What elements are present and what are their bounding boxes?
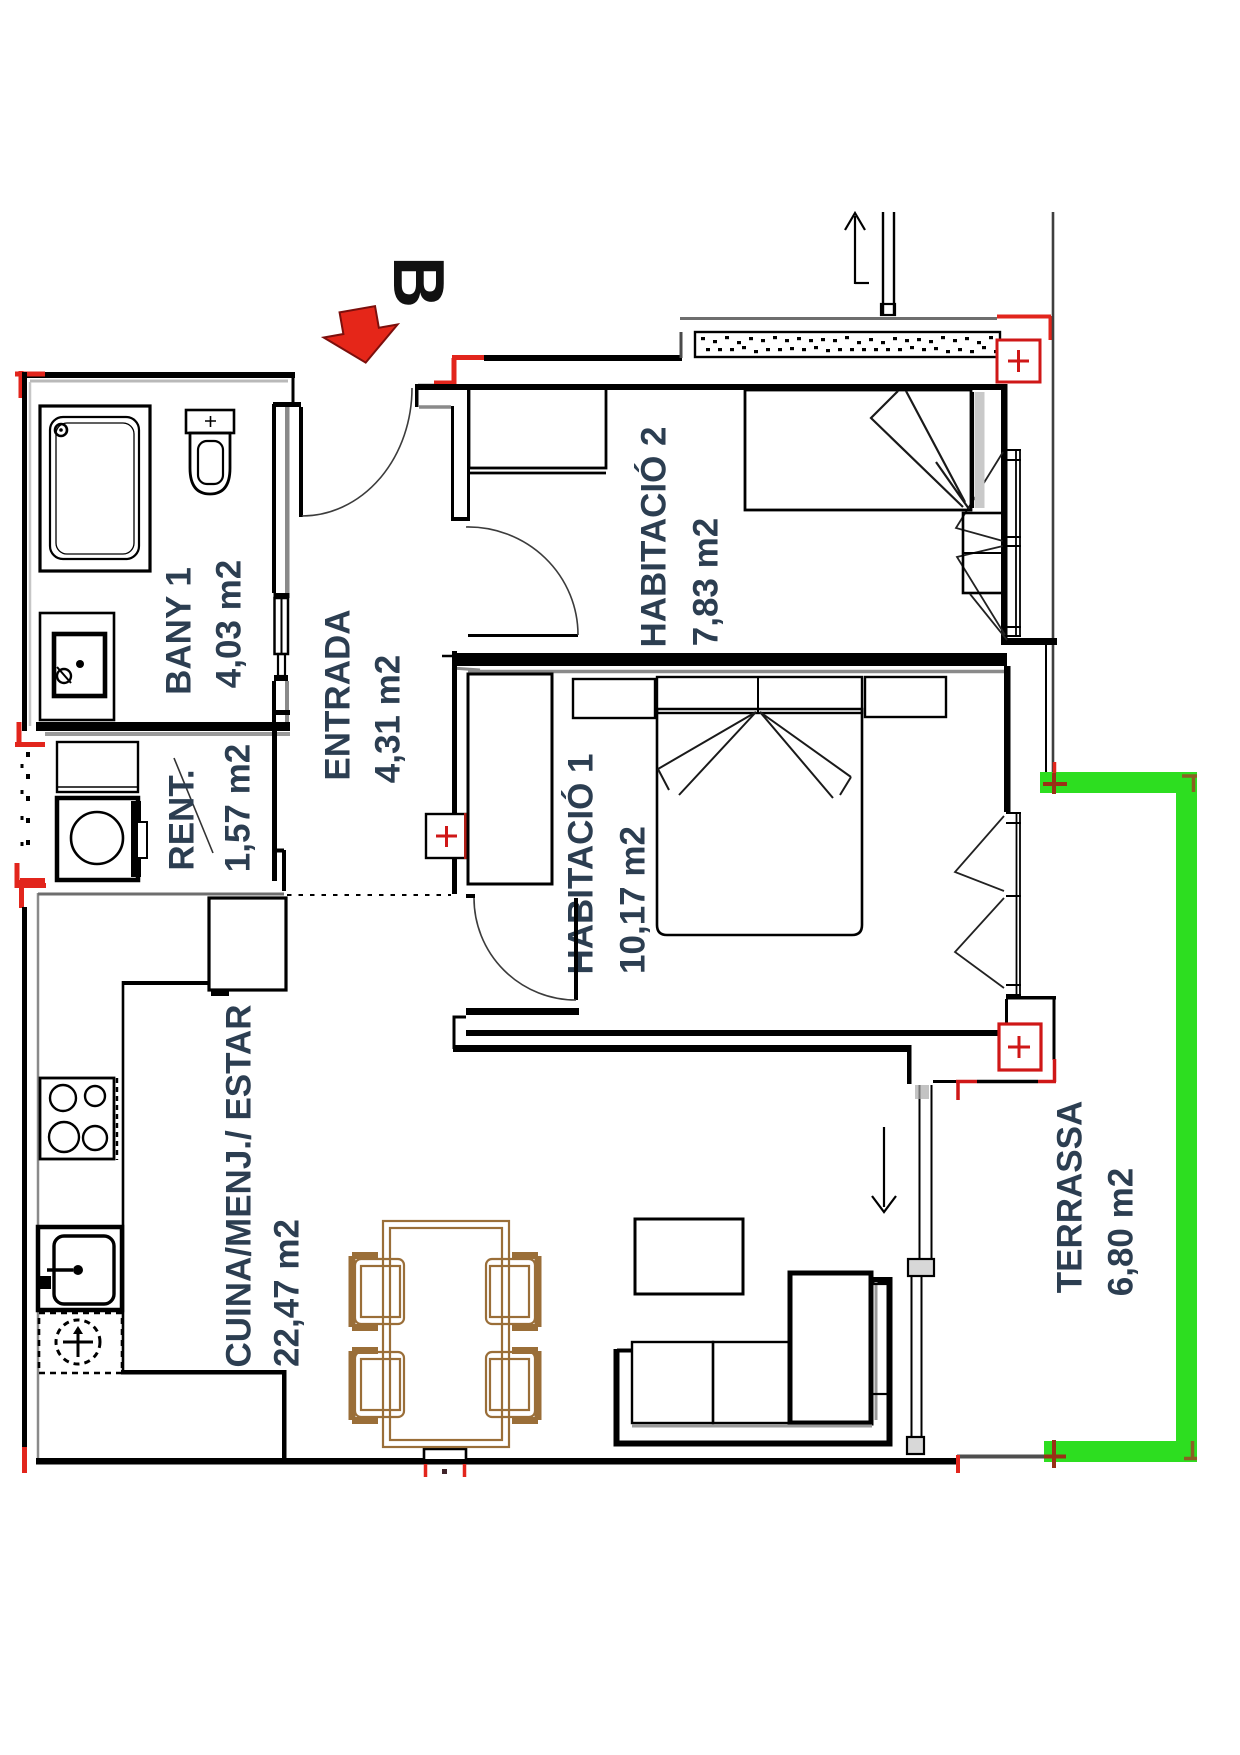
svg-text:22,47 m2: 22,47 m2 — [268, 1219, 307, 1367]
svg-text:10,17 m2: 10,17 m2 — [614, 826, 653, 974]
svg-text:BANY 1: BANY 1 — [160, 567, 199, 695]
svg-text:6,80 m2: 6,80 m2 — [1102, 1168, 1141, 1296]
svg-text:TERRASSA: TERRASSA — [1051, 1101, 1090, 1294]
svg-text:4,31 m2: 4,31 m2 — [369, 655, 408, 783]
svg-text:HABITACIÓ 1: HABITACIÓ 1 — [561, 753, 601, 974]
svg-text:ENTRADA: ENTRADA — [319, 609, 358, 780]
svg-text:CUINA/MENJ./ ESTAR: CUINA/MENJ./ ESTAR — [220, 1005, 259, 1368]
svg-text:RENT.: RENT. — [163, 769, 202, 870]
svg-text:1,57 m2: 1,57 m2 — [219, 744, 258, 872]
svg-text:7,83 m2: 7,83 m2 — [687, 518, 726, 646]
svg-text:HABITACIÓ 2: HABITACIÓ 2 — [634, 426, 674, 647]
svg-text:4,03 m2: 4,03 m2 — [210, 560, 249, 688]
svg-text:B: B — [378, 256, 458, 308]
